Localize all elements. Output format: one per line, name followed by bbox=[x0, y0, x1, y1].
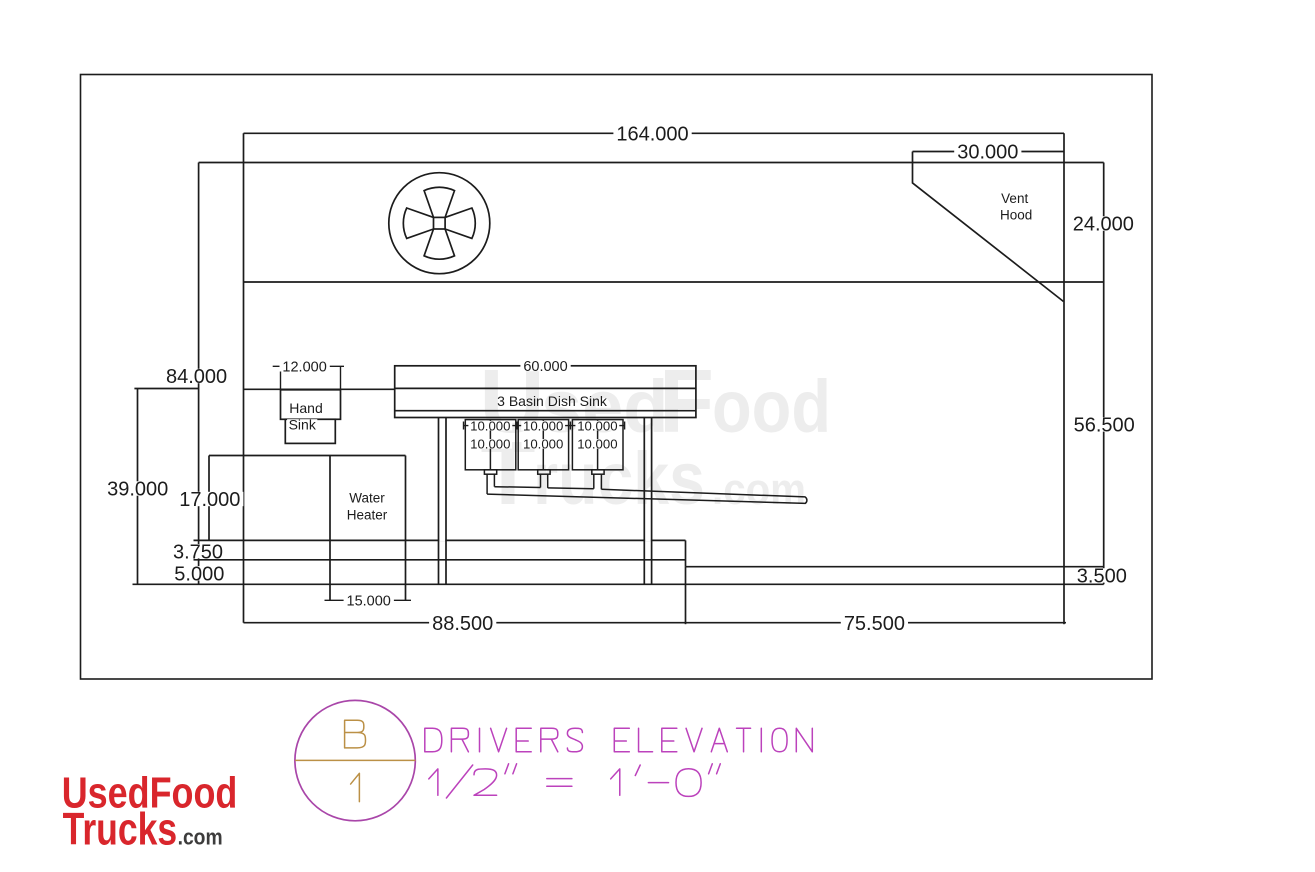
svg-text:Heater: Heater bbox=[347, 508, 388, 523]
svg-text:10.000: 10.000 bbox=[577, 437, 617, 452]
svg-text:12.000: 12.000 bbox=[282, 360, 326, 376]
svg-text:30.000: 30.000 bbox=[957, 142, 1018, 164]
svg-text:10.000: 10.000 bbox=[470, 437, 510, 452]
svg-text:17.000: 17.000 bbox=[179, 489, 240, 511]
svg-text:.com: .com bbox=[178, 825, 223, 850]
svg-text:Hand: Hand bbox=[289, 400, 322, 416]
svg-text:5.000: 5.000 bbox=[174, 564, 224, 586]
svg-text:3 Basin Dish Sink: 3 Basin Dish Sink bbox=[497, 393, 608, 409]
svg-text:3.500: 3.500 bbox=[1077, 566, 1127, 588]
svg-text:Hood: Hood bbox=[1000, 208, 1032, 223]
svg-text:10.000: 10.000 bbox=[523, 418, 563, 433]
svg-text:24.000: 24.000 bbox=[1073, 214, 1134, 236]
svg-text:Water: Water bbox=[349, 490, 385, 505]
svg-text:75.500: 75.500 bbox=[844, 613, 905, 635]
svg-text:56.500: 56.500 bbox=[1074, 415, 1135, 437]
svg-text:10.000: 10.000 bbox=[577, 418, 617, 433]
svg-text:10.000: 10.000 bbox=[523, 437, 563, 452]
svg-text:15.000: 15.000 bbox=[347, 594, 391, 610]
svg-text:88.500: 88.500 bbox=[432, 613, 493, 635]
svg-text:3.750: 3.750 bbox=[173, 541, 223, 563]
svg-text:39.000: 39.000 bbox=[107, 479, 168, 501]
svg-text:.com: .com bbox=[712, 465, 806, 514]
svg-text:Sink: Sink bbox=[289, 416, 317, 432]
svg-text:Trucks: Trucks bbox=[63, 804, 178, 855]
svg-text:Vent: Vent bbox=[1001, 191, 1028, 206]
svg-text:60.000: 60.000 bbox=[523, 359, 567, 375]
svg-text:10.000: 10.000 bbox=[470, 418, 510, 433]
svg-text:ood: ood bbox=[712, 365, 831, 448]
svg-text:84.000: 84.000 bbox=[166, 366, 227, 388]
svg-text:164.000: 164.000 bbox=[616, 124, 688, 146]
